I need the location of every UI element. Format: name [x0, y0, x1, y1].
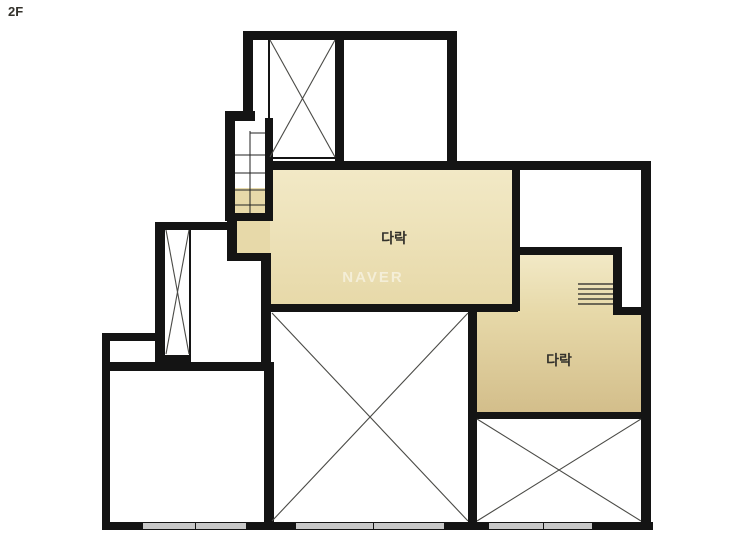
line-top-void-bottom: [268, 157, 336, 159]
wall-outer-top: [243, 31, 457, 40]
attic-right-label: 다락: [519, 350, 599, 370]
window-split: [373, 523, 374, 529]
wall-outer-right: [641, 161, 651, 530]
window-split: [543, 523, 544, 529]
wall-stair-bottom: [225, 213, 269, 221]
wall-top-room-right: [447, 31, 457, 170]
window-bottom-middle: [295, 522, 445, 530]
top-void-x: [270, 40, 335, 157]
wall-attic-main-right: [512, 170, 520, 311]
wall-top-void-right: [335, 31, 344, 170]
attic-right-upper-fill: [518, 255, 613, 312]
window-bottom-right: [488, 522, 593, 530]
wall-attic-main-bottom: [268, 304, 518, 312]
floor-plan-canvas: 2F 다락 다락 NAVER: [0, 0, 750, 560]
wall-right-leg-left: [613, 247, 622, 315]
naver-watermark: NAVER: [323, 269, 423, 286]
attic-main-label: 다락: [354, 228, 434, 248]
narrow-void-x: [166, 230, 189, 354]
wall-main-horizontal: [268, 161, 651, 170]
middle-void-x: [272, 313, 468, 521]
stair-landing-fill: [235, 188, 265, 213]
wall-leftmid-top: [155, 222, 237, 230]
window-split: [195, 523, 196, 529]
wall-leftmid-left: [155, 222, 165, 363]
wall-left-horizontal: [102, 362, 274, 371]
wall-middle-left-lower: [264, 366, 274, 530]
line-top-void-left: [268, 40, 270, 158]
wall-right-room-bottom: [516, 247, 615, 255]
wall-attic-right-bottom: [468, 412, 651, 419]
floor-label: 2F: [8, 4, 23, 19]
wall-right-leg-bottom: [613, 307, 651, 315]
wall-middle-left-upper: [261, 253, 271, 368]
bottom-right-void-x: [477, 419, 641, 521]
wall-outer-stair-left: [225, 111, 235, 221]
window-bottom-left: [142, 522, 247, 530]
line-narrow-void-right: [189, 230, 191, 363]
wall-outer-topleft: [243, 31, 253, 119]
attic-stair-nook-fill: [237, 221, 270, 253]
wall-pocket-top: [102, 333, 158, 341]
